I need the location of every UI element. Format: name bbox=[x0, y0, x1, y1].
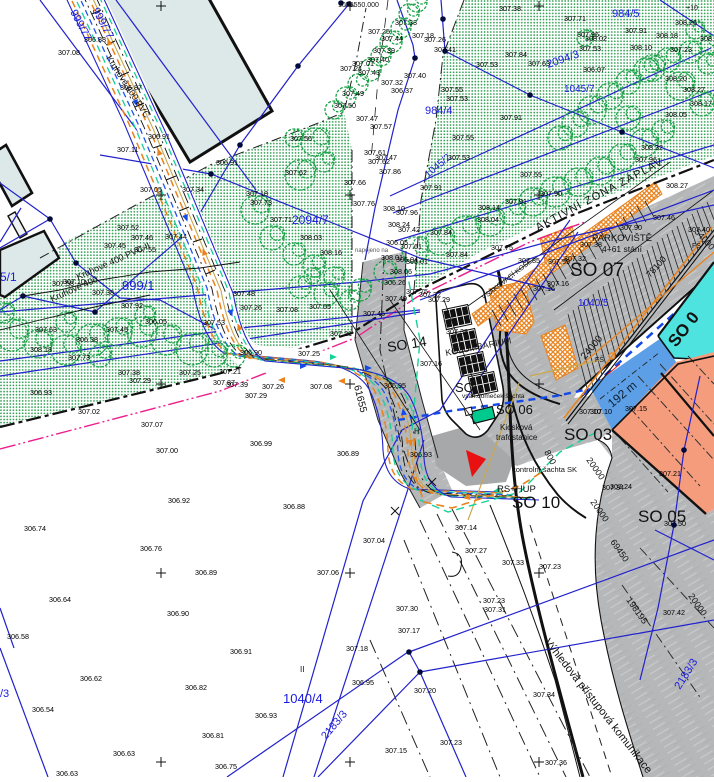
svg-text:307.55: 307.55 bbox=[452, 133, 474, 142]
svg-text:306.01: 306.01 bbox=[406, 257, 428, 266]
svg-text:307.15: 307.15 bbox=[385, 746, 407, 755]
svg-text:307.25: 307.25 bbox=[179, 368, 201, 377]
svg-text:999/1: 999/1 bbox=[122, 278, 155, 293]
svg-text:307.31: 307.31 bbox=[484, 605, 506, 614]
svg-text:+10: +10 bbox=[686, 5, 698, 12]
svg-text:FŠ: FŠ bbox=[692, 241, 701, 250]
svg-text:308.18: 308.18 bbox=[30, 345, 52, 354]
svg-text:306.75: 306.75 bbox=[215, 762, 237, 771]
svg-text:308.32: 308.32 bbox=[641, 143, 663, 152]
svg-text:307.44: 307.44 bbox=[381, 34, 403, 43]
svg-text:307.91: 307.91 bbox=[500, 113, 522, 122]
svg-text:306.05: 306.05 bbox=[145, 317, 167, 326]
svg-text:307.45: 307.45 bbox=[363, 309, 385, 318]
svg-text:307.36: 307.36 bbox=[545, 758, 567, 767]
svg-text:307.24: 307.24 bbox=[610, 482, 632, 491]
svg-text:306.58: 306.58 bbox=[7, 632, 29, 641]
svg-text:307.43: 307.43 bbox=[358, 68, 380, 77]
svg-text:307.71: 307.71 bbox=[564, 14, 586, 23]
svg-text:2094/7: 2094/7 bbox=[292, 213, 329, 227]
svg-text:307.18: 307.18 bbox=[346, 644, 368, 653]
svg-text:308.04: 308.04 bbox=[477, 215, 499, 224]
svg-text:307.46: 307.46 bbox=[653, 213, 675, 222]
svg-text:307.08: 307.08 bbox=[58, 48, 80, 57]
svg-text:306.74: 306.74 bbox=[24, 524, 46, 533]
svg-text:307.55: 307.55 bbox=[441, 85, 463, 94]
svg-text:308.16: 308.16 bbox=[320, 248, 342, 257]
svg-text:307.45: 307.45 bbox=[106, 325, 128, 334]
svg-text:FŠ: FŠ bbox=[595, 355, 604, 364]
svg-text:306.89: 306.89 bbox=[337, 449, 359, 458]
svg-text:306.99: 306.99 bbox=[250, 439, 272, 448]
svg-text:napojeno na: napojeno na bbox=[355, 248, 389, 254]
svg-text:307.59: 307.59 bbox=[548, 257, 570, 266]
svg-text:307.34: 307.34 bbox=[182, 185, 204, 194]
svg-text:307.55: 307.55 bbox=[520, 170, 542, 179]
svg-text:307.27: 307.27 bbox=[465, 546, 487, 555]
svg-text:RS+HUP: RS+HUP bbox=[497, 484, 536, 495]
svg-text:307.44: 307.44 bbox=[165, 232, 187, 241]
svg-text:308.27: 308.27 bbox=[683, 85, 705, 94]
svg-text:307.18: 307.18 bbox=[246, 189, 268, 198]
svg-text:306.26: 306.26 bbox=[384, 278, 406, 287]
svg-text:307.06: 307.06 bbox=[317, 568, 339, 577]
svg-text:306.88: 306.88 bbox=[283, 502, 305, 511]
svg-text:307.84: 307.84 bbox=[430, 228, 452, 237]
svg-text:308.02: 308.02 bbox=[585, 34, 607, 43]
svg-text:307.05: 307.05 bbox=[140, 185, 162, 194]
svg-text:1045/7: 1045/7 bbox=[564, 84, 595, 95]
svg-text:306.62: 306.62 bbox=[80, 674, 102, 683]
svg-text:vsak.domeček šachta: vsak.domeček šachta bbox=[462, 393, 525, 400]
svg-text:306.90: 306.90 bbox=[240, 348, 262, 357]
svg-text:61655: 61655 bbox=[351, 384, 369, 414]
svg-text:20000: 20000 bbox=[584, 455, 607, 481]
svg-text:307.91: 307.91 bbox=[420, 183, 442, 192]
svg-text:307.49: 307.49 bbox=[385, 294, 407, 303]
svg-text:306.63: 306.63 bbox=[113, 749, 135, 758]
svg-text:307.21: 307.21 bbox=[330, 329, 352, 338]
svg-text:308.20: 308.20 bbox=[665, 74, 687, 83]
svg-text:306.91: 306.91 bbox=[216, 158, 238, 167]
svg-text:SO 03: SO 03 bbox=[564, 425, 612, 444]
svg-text:984/5: 984/5 bbox=[612, 8, 640, 20]
svg-text:306.91: 306.91 bbox=[148, 132, 170, 141]
svg-text:307.53: 307.53 bbox=[476, 60, 498, 69]
svg-text:1079550.000: 1079550.000 bbox=[338, 2, 379, 9]
svg-text:307.23: 307.23 bbox=[539, 562, 561, 571]
svg-text:307.10: 307.10 bbox=[579, 407, 601, 416]
svg-text:/3: /3 bbox=[0, 688, 9, 700]
svg-text:1040/5: 1040/5 bbox=[578, 298, 609, 309]
svg-text:308.03: 308.03 bbox=[300, 233, 322, 242]
svg-text:307.15: 307.15 bbox=[625, 404, 647, 413]
svg-text:306.92: 306.92 bbox=[168, 496, 190, 505]
svg-text:1040/4: 1040/4 bbox=[283, 691, 323, 706]
svg-text:307.61: 307.61 bbox=[400, 242, 422, 251]
svg-text:307.96: 307.96 bbox=[396, 208, 418, 217]
svg-text:307.42: 307.42 bbox=[398, 225, 420, 234]
svg-text:307.07: 307.07 bbox=[141, 420, 163, 429]
svg-text:307.52: 307.52 bbox=[117, 223, 139, 232]
svg-text:307.62: 307.62 bbox=[285, 168, 307, 177]
svg-text:306.82: 306.82 bbox=[185, 683, 207, 692]
svg-text:308.05: 308.05 bbox=[665, 110, 687, 119]
svg-text:307.33: 307.33 bbox=[502, 558, 524, 567]
svg-text:307.90: 307.90 bbox=[540, 189, 562, 198]
svg-text:SO 07: SO 07 bbox=[570, 260, 624, 281]
svg-text:307.49: 307.49 bbox=[342, 89, 364, 98]
svg-text:307.38: 307.38 bbox=[499, 4, 521, 13]
svg-text:308.26: 308.26 bbox=[675, 18, 697, 27]
svg-text:SO 05: SO 05 bbox=[638, 507, 686, 526]
svg-text:307.50: 307.50 bbox=[334, 101, 356, 110]
svg-text:307.26: 307.26 bbox=[424, 35, 446, 44]
svg-text:307.33: 307.33 bbox=[395, 18, 417, 27]
svg-text:307.23: 307.23 bbox=[440, 738, 462, 747]
svg-text:307.11: 307.11 bbox=[117, 145, 138, 154]
svg-text:307.63: 307.63 bbox=[35, 325, 57, 334]
svg-text:307.16: 307.16 bbox=[533, 284, 555, 293]
svg-text:307.73: 307.73 bbox=[68, 353, 90, 362]
svg-text:307.08: 307.08 bbox=[310, 382, 332, 391]
svg-text:307.53: 307.53 bbox=[446, 94, 468, 103]
svg-text:307.91: 307.91 bbox=[505, 197, 527, 206]
svg-text:307.42: 307.42 bbox=[663, 608, 685, 617]
svg-text:307.53: 307.53 bbox=[579, 44, 601, 53]
svg-text:trafostanice: trafostanice bbox=[496, 433, 538, 442]
svg-text:308.06: 308.06 bbox=[390, 267, 412, 276]
svg-text:307.14: 307.14 bbox=[455, 523, 477, 532]
svg-text:306.54: 306.54 bbox=[32, 705, 54, 714]
svg-text:306.63: 306.63 bbox=[56, 769, 78, 777]
svg-text:306.38: 306.38 bbox=[76, 335, 98, 344]
svg-text:307.73: 307.73 bbox=[250, 198, 272, 207]
svg-text:308.17: 308.17 bbox=[690, 99, 712, 108]
svg-text:307.23: 307.23 bbox=[670, 45, 692, 54]
svg-text:306.81: 306.81 bbox=[202, 731, 224, 740]
svg-text:307.84: 307.84 bbox=[446, 250, 468, 259]
svg-text:307.26: 307.26 bbox=[240, 303, 262, 312]
svg-text:307.02: 307.02 bbox=[78, 407, 100, 416]
svg-text:306.91: 306.91 bbox=[230, 647, 252, 656]
svg-text:307.34: 307.34 bbox=[533, 690, 555, 699]
svg-text:308.27: 308.27 bbox=[666, 181, 688, 190]
svg-text:984/4: 984/4 bbox=[425, 105, 453, 117]
svg-text:307.20: 307.20 bbox=[414, 686, 436, 695]
svg-text:307.75: 307.75 bbox=[491, 243, 513, 252]
svg-text:307.05: 307.05 bbox=[309, 302, 331, 311]
svg-text:307.45: 307.45 bbox=[104, 241, 126, 250]
svg-text:307.39: 307.39 bbox=[373, 46, 395, 55]
svg-text:308.43: 308.43 bbox=[700, 34, 714, 43]
svg-text:306.90: 306.90 bbox=[167, 609, 189, 618]
svg-text:308.10: 308.10 bbox=[630, 43, 652, 52]
svg-text:307.25: 307.25 bbox=[298, 349, 320, 358]
svg-text:307.86: 307.86 bbox=[379, 167, 401, 176]
svg-text:307.84: 307.84 bbox=[505, 50, 527, 59]
svg-text:307.21: 307.21 bbox=[659, 469, 681, 478]
svg-text:306.07: 306.07 bbox=[583, 65, 605, 74]
svg-text:307.91: 307.91 bbox=[625, 26, 647, 35]
svg-text:307.53: 307.53 bbox=[203, 318, 225, 327]
svg-text:308.18: 308.18 bbox=[656, 31, 678, 40]
svg-text:307.62: 307.62 bbox=[368, 157, 390, 166]
svg-text:PARKOVIŠTĚ: PARKOVIŠTĚ bbox=[592, 233, 652, 244]
svg-text:307.41: 307.41 bbox=[434, 45, 456, 54]
svg-text:307.71: 307.71 bbox=[270, 215, 292, 224]
svg-text:Kiosková: Kiosková bbox=[500, 423, 533, 432]
svg-text:SO 06: SO 06 bbox=[496, 402, 533, 417]
svg-text:306.89: 306.89 bbox=[195, 568, 217, 577]
svg-text:307.90: 307.90 bbox=[620, 223, 642, 232]
svg-text:II: II bbox=[300, 665, 304, 674]
svg-text:307.32: 307.32 bbox=[419, 290, 441, 299]
svg-text:307.17: 307.17 bbox=[398, 626, 420, 635]
svg-text:307.46: 307.46 bbox=[131, 233, 153, 242]
svg-text:307.87: 307.87 bbox=[213, 378, 235, 387]
svg-text:307.16: 307.16 bbox=[420, 359, 442, 368]
svg-text:307.04: 307.04 bbox=[363, 536, 385, 545]
svg-text:307.76: 307.76 bbox=[353, 199, 375, 208]
svg-text:307.23: 307.23 bbox=[483, 596, 505, 605]
svg-text:306.93: 306.93 bbox=[410, 450, 432, 459]
svg-text:307.30: 307.30 bbox=[396, 604, 418, 613]
svg-text:307.38: 307.38 bbox=[92, 288, 114, 297]
svg-text:307.40: 307.40 bbox=[404, 71, 426, 80]
svg-text:306.64: 306.64 bbox=[49, 595, 71, 604]
svg-text:307.56: 307.56 bbox=[290, 134, 312, 143]
svg-text:308.14: 308.14 bbox=[478, 203, 500, 212]
svg-text:5/1: 5/1 bbox=[0, 270, 17, 284]
svg-text:306.95: 306.95 bbox=[384, 381, 406, 390]
svg-text:307.29: 307.29 bbox=[245, 391, 267, 400]
svg-text:307.26: 307.26 bbox=[262, 382, 284, 391]
svg-text:307.66: 307.66 bbox=[344, 178, 366, 187]
svg-text:306.76: 306.76 bbox=[140, 544, 162, 553]
svg-text:307.48: 307.48 bbox=[233, 289, 255, 298]
svg-text:307.57: 307.57 bbox=[370, 122, 392, 131]
svg-text:4+61 stání: 4+61 stání bbox=[602, 244, 643, 254]
svg-text:307.21: 307.21 bbox=[219, 367, 241, 376]
svg-text:306.37: 306.37 bbox=[391, 86, 413, 95]
svg-text:306.93: 306.93 bbox=[30, 388, 52, 397]
svg-text:kontrolní šachta SK: kontrolní šachta SK bbox=[512, 465, 577, 474]
svg-text:307.92: 307.92 bbox=[121, 301, 143, 310]
svg-text:307.29: 307.29 bbox=[129, 376, 151, 385]
svg-text:307.08: 307.08 bbox=[276, 305, 298, 314]
svg-text:306.93: 306.93 bbox=[255, 711, 277, 720]
svg-text:307.38: 307.38 bbox=[446, 327, 468, 336]
svg-text:307.00: 307.00 bbox=[156, 446, 178, 455]
svg-text:H: H bbox=[414, 427, 420, 436]
svg-text:SO 10: SO 10 bbox=[512, 493, 560, 512]
svg-text:306.95: 306.95 bbox=[352, 678, 374, 687]
